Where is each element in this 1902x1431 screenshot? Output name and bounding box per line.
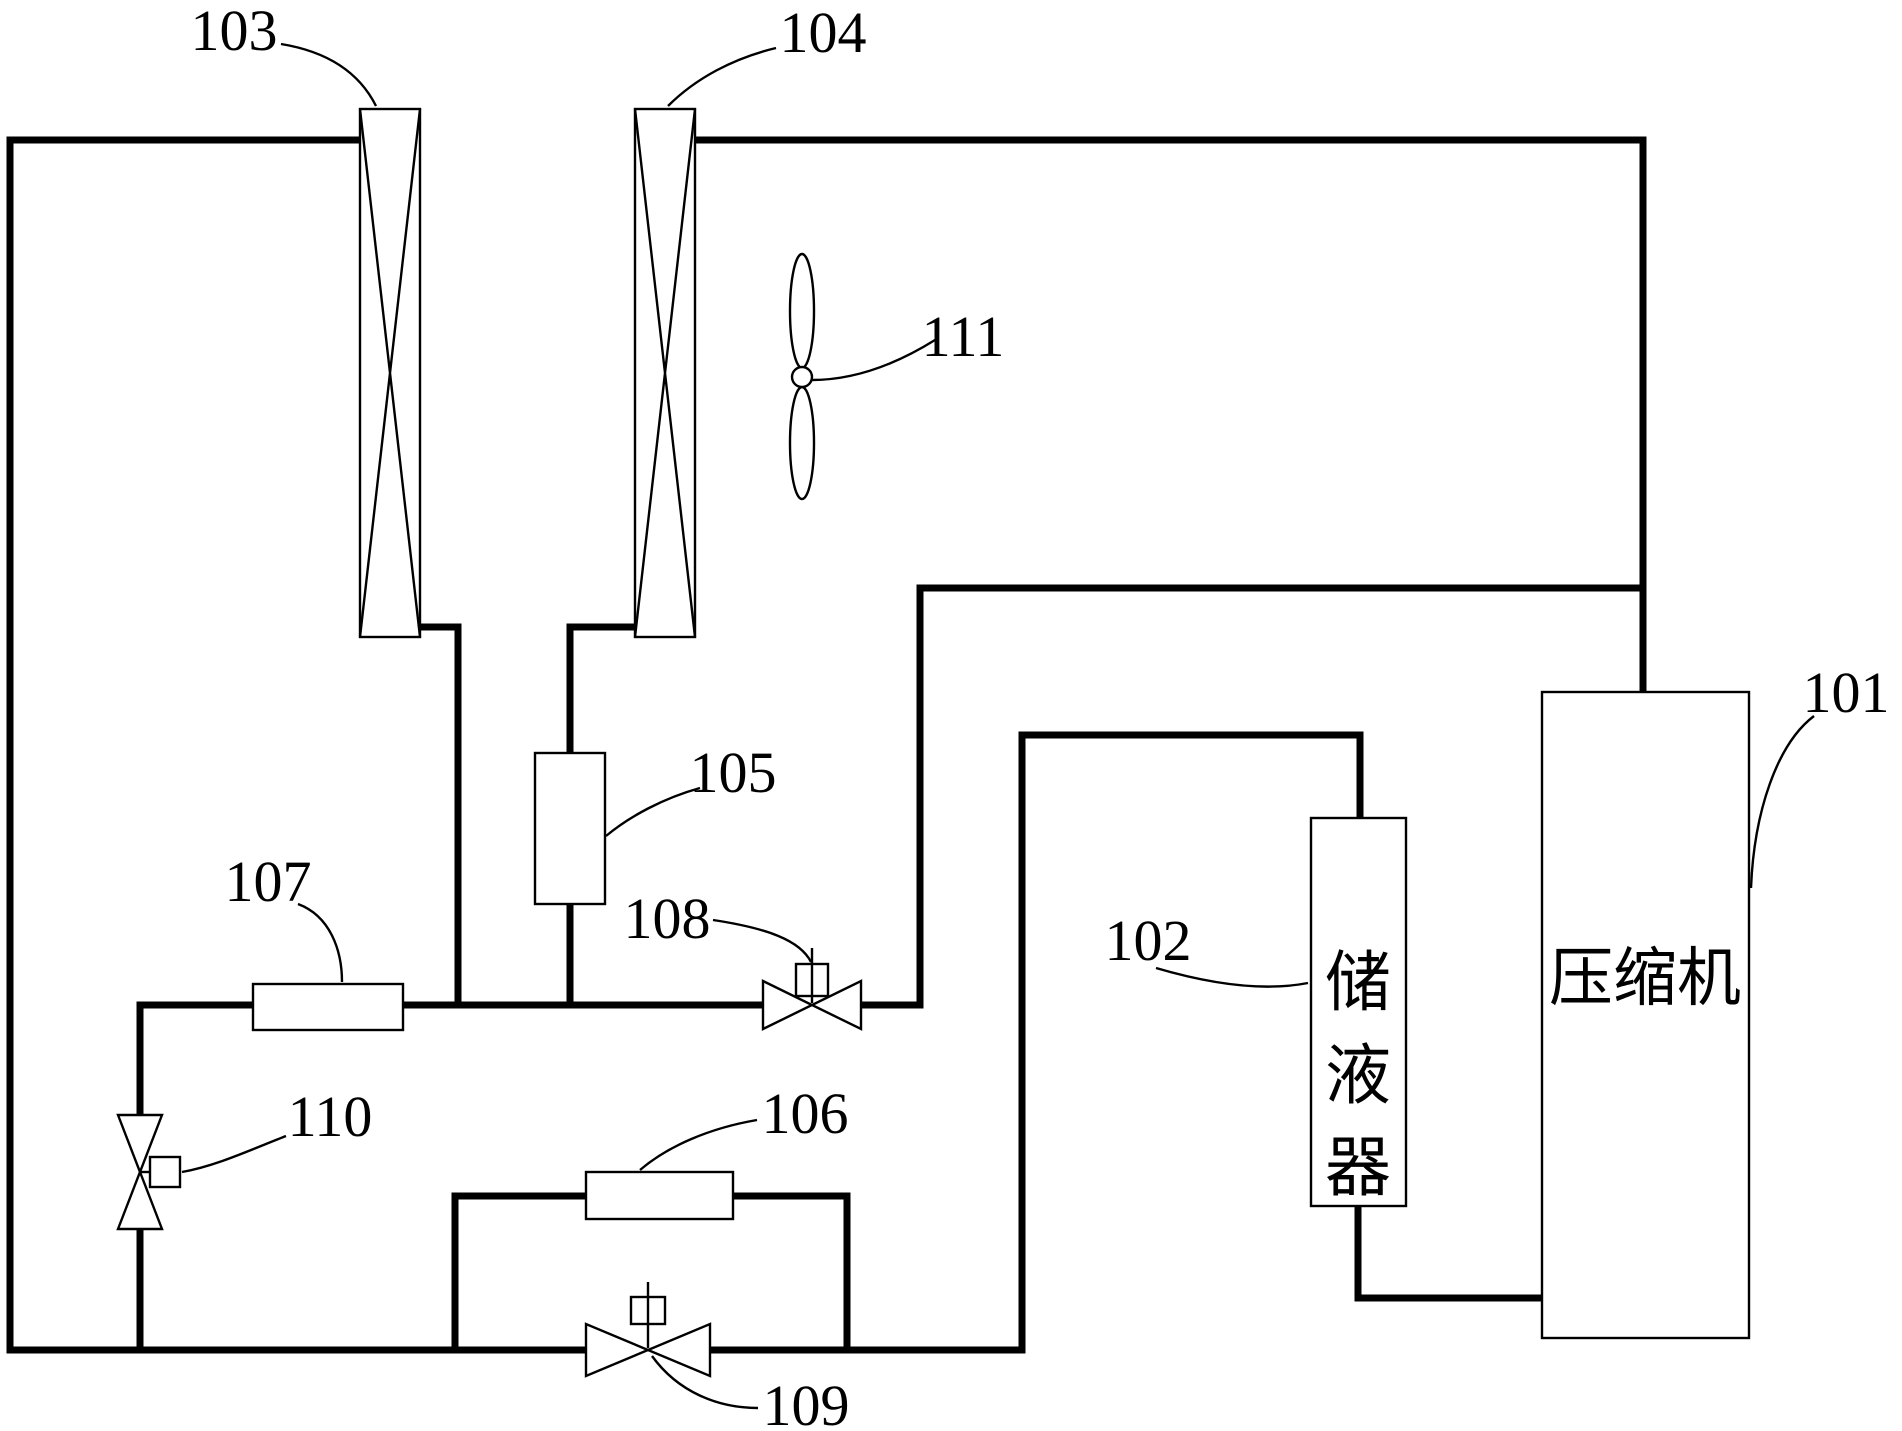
heat-exchanger-coil-104 <box>635 109 695 637</box>
valve-109-left-triangle <box>586 1324 648 1376</box>
component-105-box <box>535 753 605 904</box>
schematic-canvas: 储 液 器 压缩机 103 104 111 105 107 108 110 10… <box>0 0 1902 1431</box>
leader-108 <box>713 920 811 962</box>
accumulator-label-char-3: 器 <box>1325 1132 1391 1205</box>
pipe-bottom-to-accumulator-top <box>710 735 1360 1350</box>
pipe-coil103-drop <box>420 627 458 1005</box>
components: 储 液 器 压缩机 <box>118 109 1749 1376</box>
accumulator-label-char-2: 液 <box>1325 1040 1391 1113</box>
fan-hub <box>792 367 812 387</box>
heat-exchanger-coil-103 <box>360 109 420 637</box>
valve-109-right-triangle <box>648 1324 710 1376</box>
label-107: 107 <box>225 849 312 914</box>
compressor-label: 压缩机 <box>1549 943 1741 1014</box>
leader-103 <box>281 44 376 106</box>
component-106-box <box>586 1172 733 1219</box>
label-104: 104 <box>780 0 867 65</box>
label-105: 105 <box>690 740 777 805</box>
label-102: 102 <box>1105 908 1192 973</box>
accumulator: 储 液 器 <box>1311 818 1406 1206</box>
leader-111 <box>812 340 935 380</box>
compressor: 压缩机 <box>1542 692 1749 1338</box>
leader-107 <box>298 904 342 982</box>
leader-101 <box>1751 716 1814 888</box>
fan-blade-bottom <box>790 387 814 499</box>
label-101: 101 <box>1803 660 1890 725</box>
leader-106 <box>640 1120 757 1170</box>
valve-110-actuator-square <box>150 1157 180 1187</box>
pipe-topleft-leftwall-bottom <box>10 140 586 1350</box>
label-106: 106 <box>762 1081 849 1146</box>
valve-108 <box>763 948 861 1029</box>
fan-blade-top <box>790 254 814 368</box>
accumulator-label-char-1: 储 <box>1325 947 1391 1020</box>
leader-110 <box>182 1136 286 1172</box>
valve-110 <box>118 1115 180 1229</box>
pipe-accumulator-to-compressor <box>1358 1206 1542 1298</box>
pipe-topright-to-compressor-top <box>695 140 1643 696</box>
leader-104 <box>668 48 776 106</box>
label-108: 108 <box>624 886 711 951</box>
compressor-box <box>1542 692 1749 1338</box>
label-111: 111 <box>922 304 1005 369</box>
label-109: 109 <box>763 1373 850 1431</box>
pipe-valve108-to-compressor-riser <box>861 588 1643 1005</box>
label-110: 110 <box>288 1084 373 1149</box>
leader-105 <box>606 788 700 836</box>
fan-icon <box>790 254 814 499</box>
valve-109 <box>586 1282 710 1376</box>
label-103: 103 <box>191 0 278 63</box>
pipe-lineA-to-valve110 <box>140 1005 763 1115</box>
component-107-box <box>253 984 403 1030</box>
